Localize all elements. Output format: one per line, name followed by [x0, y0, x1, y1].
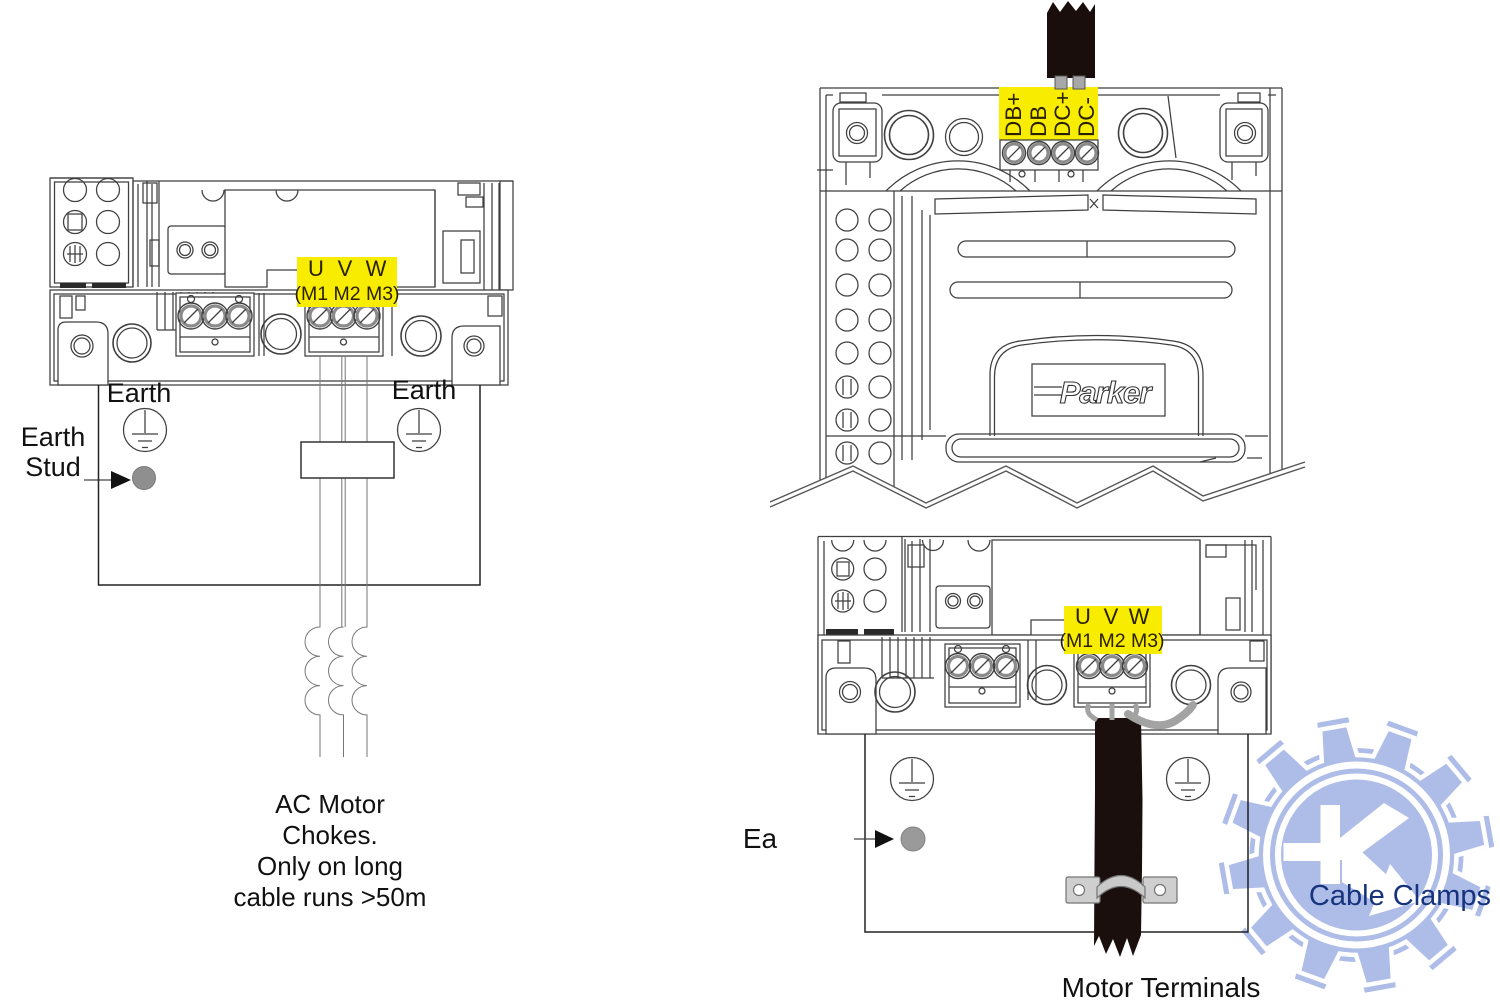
svg-text:Ea: Ea — [743, 823, 778, 854]
svg-text:AC Motor: AC Motor — [275, 789, 385, 819]
svg-text:(M1 M2 M3): (M1 M2 M3) — [294, 283, 399, 305]
svg-text:Only on long: Only on long — [257, 851, 403, 881]
svg-text:DC+: DC+ — [1050, 91, 1075, 137]
svg-text:Earth: Earth — [21, 422, 86, 452]
svg-text:UVW: UVW — [308, 256, 387, 281]
svg-text:DB+: DB+ — [1001, 93, 1026, 137]
svg-text:DC-: DC- — [1074, 97, 1099, 137]
svg-text:Motor Terminals: Motor Terminals — [1062, 972, 1261, 1000]
svg-text:Cable Clamps: Cable Clamps — [1309, 880, 1491, 912]
svg-text:Chokes.: Chokes. — [282, 820, 377, 850]
svg-text:Earth: Earth — [107, 378, 172, 408]
svg-text:DB: DB — [1026, 106, 1051, 137]
svg-text:Stud: Stud — [25, 452, 81, 482]
svg-text:UVW: UVW — [1075, 604, 1150, 629]
svg-text:(M1 M2 M3): (M1 M2 M3) — [1059, 630, 1164, 652]
svg-text:Parker: Parker — [1060, 375, 1153, 410]
svg-text:cable runs >50m: cable runs >50m — [234, 882, 427, 912]
svg-text:Earth: Earth — [392, 375, 457, 405]
